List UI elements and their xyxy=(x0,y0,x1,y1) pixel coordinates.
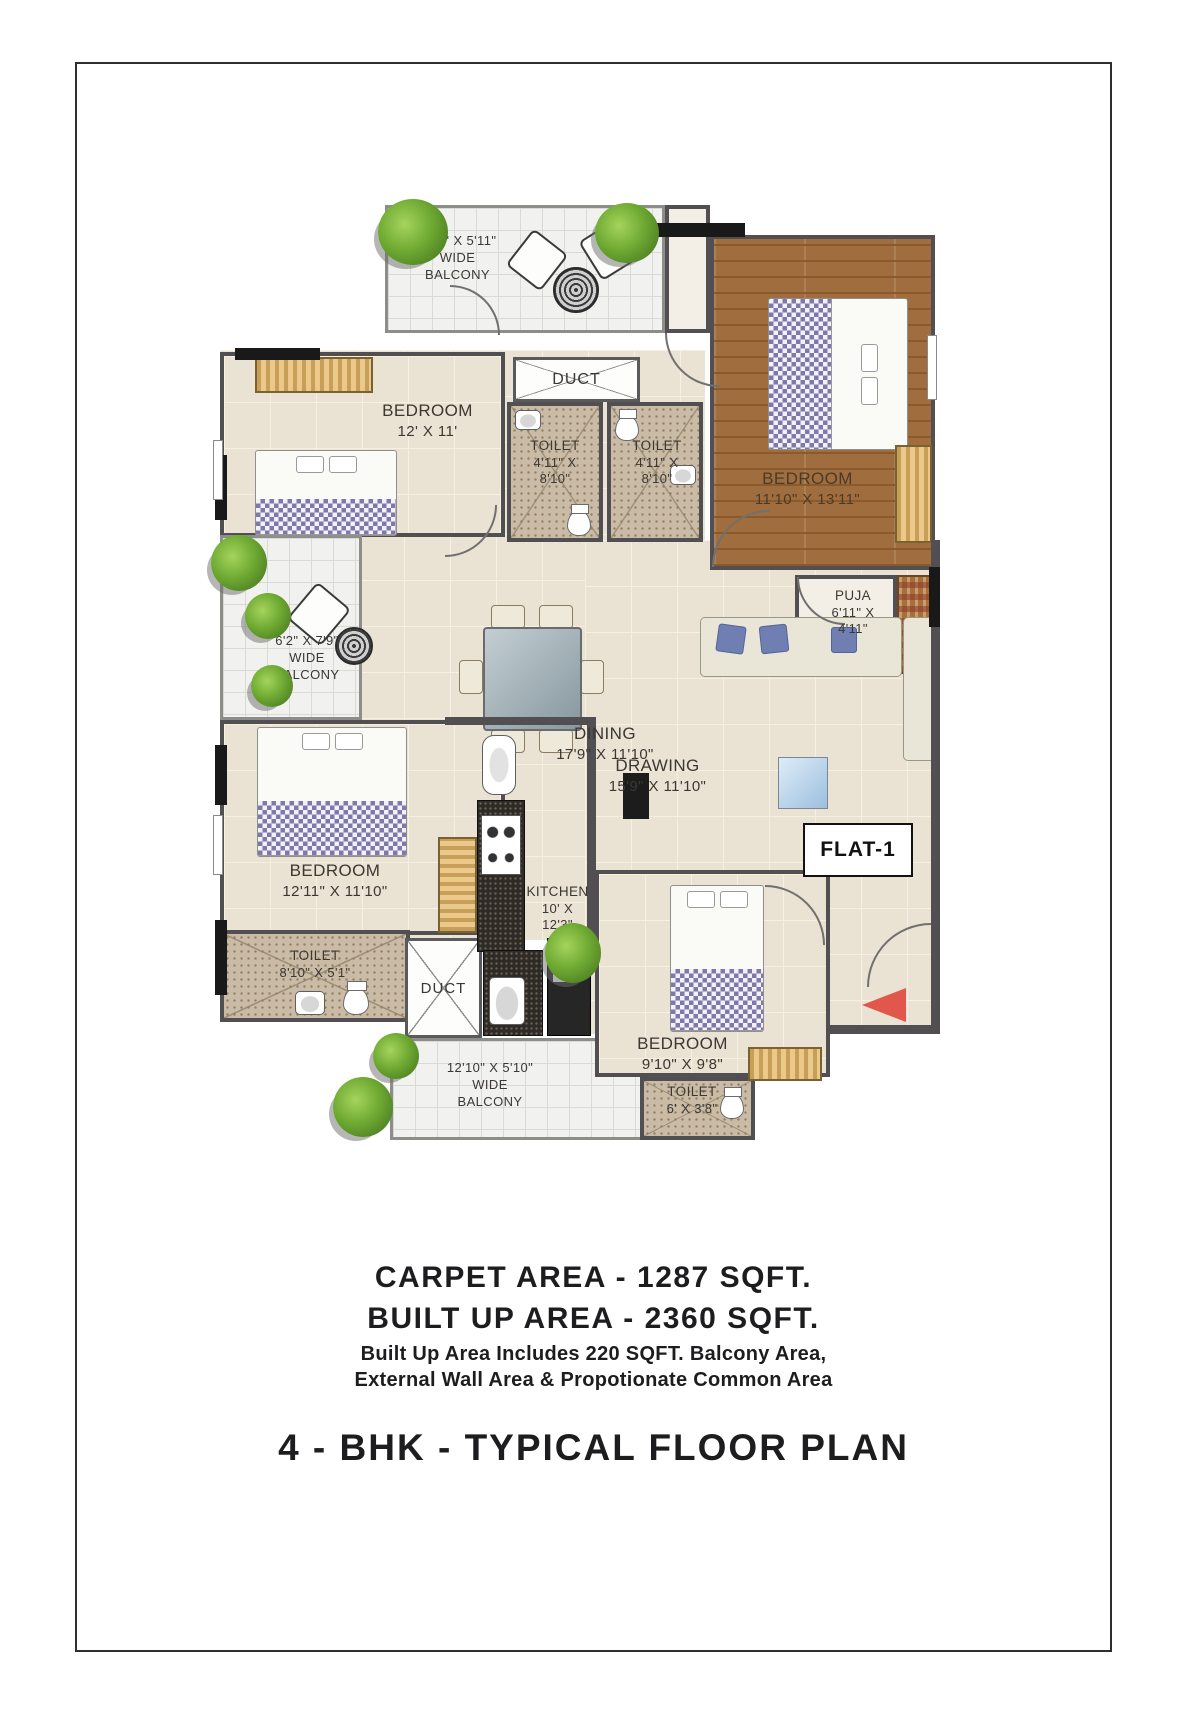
bed-blanket xyxy=(769,299,832,449)
bed-pillows xyxy=(258,728,406,801)
bed-icon xyxy=(768,298,908,450)
plan-title: 4 - BHK - TYPICAL FLOOR PLAN xyxy=(0,1427,1187,1469)
bedroom-top-left-label: BEDROOM 12' X 11' xyxy=(345,400,510,442)
bed-pillows xyxy=(256,451,396,499)
tree-icon xyxy=(373,1033,419,1079)
toilet-top-right-label: TOILET 4'11" X 8'10" xyxy=(613,437,701,488)
wardrobe-icon xyxy=(438,837,477,933)
dining-chair-icon xyxy=(491,605,525,629)
dining-chair-icon xyxy=(459,660,483,694)
bed-pillows xyxy=(671,886,763,969)
kitchen-sink-icon xyxy=(489,977,525,1025)
wall-segment xyxy=(215,745,227,805)
wardrobe-icon xyxy=(895,445,932,543)
wardrobe-icon xyxy=(255,357,373,393)
dining-chair-icon xyxy=(580,660,604,694)
bed-icon xyxy=(255,450,397,536)
tree-icon xyxy=(211,535,267,591)
balcony-bottom-label: 12'10" X 5'10" WIDE BALCONY xyxy=(400,1060,580,1111)
built-up-area-text: BUILT UP AREA - 2360 SQFT. xyxy=(0,1299,1187,1340)
bed-blanket xyxy=(256,499,396,535)
toilet-sink-icon xyxy=(515,410,541,430)
wardrobe-icon xyxy=(748,1047,822,1081)
toilet-wc-icon xyxy=(343,987,369,1015)
toilet-sink-icon xyxy=(295,991,325,1015)
tree-icon xyxy=(378,199,448,265)
bed-pillows xyxy=(832,299,907,449)
sofa-pillow-icon xyxy=(759,624,790,655)
bedroom-bottom-label: BEDROOM 9'10" X 9'8" xyxy=(620,1033,745,1075)
wall-segment xyxy=(215,920,227,995)
tree-icon xyxy=(251,665,293,707)
duct-top: DUCT xyxy=(513,357,640,402)
bed-blanket xyxy=(671,969,763,1031)
area-note-line1: Built Up Area Includes 220 SQFT. Balcony… xyxy=(0,1341,1187,1367)
foyer-bottom-wall xyxy=(830,1025,940,1034)
duct-bottom-label: DUCT xyxy=(408,941,479,1035)
bed-blanket xyxy=(258,801,406,856)
puja-label: PUJA 6'11" X 4'11" xyxy=(812,587,894,638)
toilet-wc-icon xyxy=(567,510,591,536)
wall-segment xyxy=(235,348,320,360)
window-icon xyxy=(213,440,223,500)
drawing-label: DRAWING 15'9" X 11'10" xyxy=(575,755,740,797)
toilet-bottom-left-label: TOILET 8'10" X 5'1" xyxy=(235,947,395,981)
dining-table-icon xyxy=(483,627,582,731)
duct-top-label: DUCT xyxy=(516,360,637,399)
area-note-line2: External Wall Area & Propotionate Common… xyxy=(0,1367,1187,1393)
bedroom-top-right-label: BEDROOM 11'10" X 13'11" xyxy=(725,468,890,510)
flat-1-label: FLAT-1 xyxy=(803,823,913,877)
bedroom-left-label: BEDROOM 12'11" X 11'10" xyxy=(240,860,430,902)
bed-icon xyxy=(257,727,407,857)
wash-basin-icon xyxy=(482,735,516,795)
floor-plan: 14'7" X 5'11" WIDE BALCONY BEDROOM 11'10… xyxy=(215,205,940,1140)
balcony-table-icon xyxy=(553,267,599,313)
tree-icon xyxy=(595,203,659,263)
wall-segment xyxy=(929,567,940,627)
rug-icon xyxy=(778,757,828,809)
window-icon xyxy=(927,335,937,400)
tree-icon xyxy=(333,1077,393,1137)
footer: CARPET AREA - 1287 SQFT. BUILT UP AREA -… xyxy=(0,1258,1187,1469)
window-icon xyxy=(213,815,223,875)
tree-icon xyxy=(245,593,291,639)
dining-chair-icon xyxy=(539,605,573,629)
stove-icon xyxy=(481,815,521,875)
tree-icon xyxy=(545,923,601,983)
toilet-top-left-label: TOILET 4'11" X 8'10" xyxy=(511,437,599,488)
duct-bottom: DUCT xyxy=(405,938,482,1038)
bed-icon xyxy=(670,885,764,1032)
toilet-bottom-right-label: TOILET 6' X 3'8" xyxy=(647,1083,737,1117)
carpet-area-text: CARPET AREA - 1287 SQFT. xyxy=(0,1258,1187,1299)
sofa-pillow-icon xyxy=(715,623,747,655)
flat-1-text: FLAT-1 xyxy=(820,838,896,862)
